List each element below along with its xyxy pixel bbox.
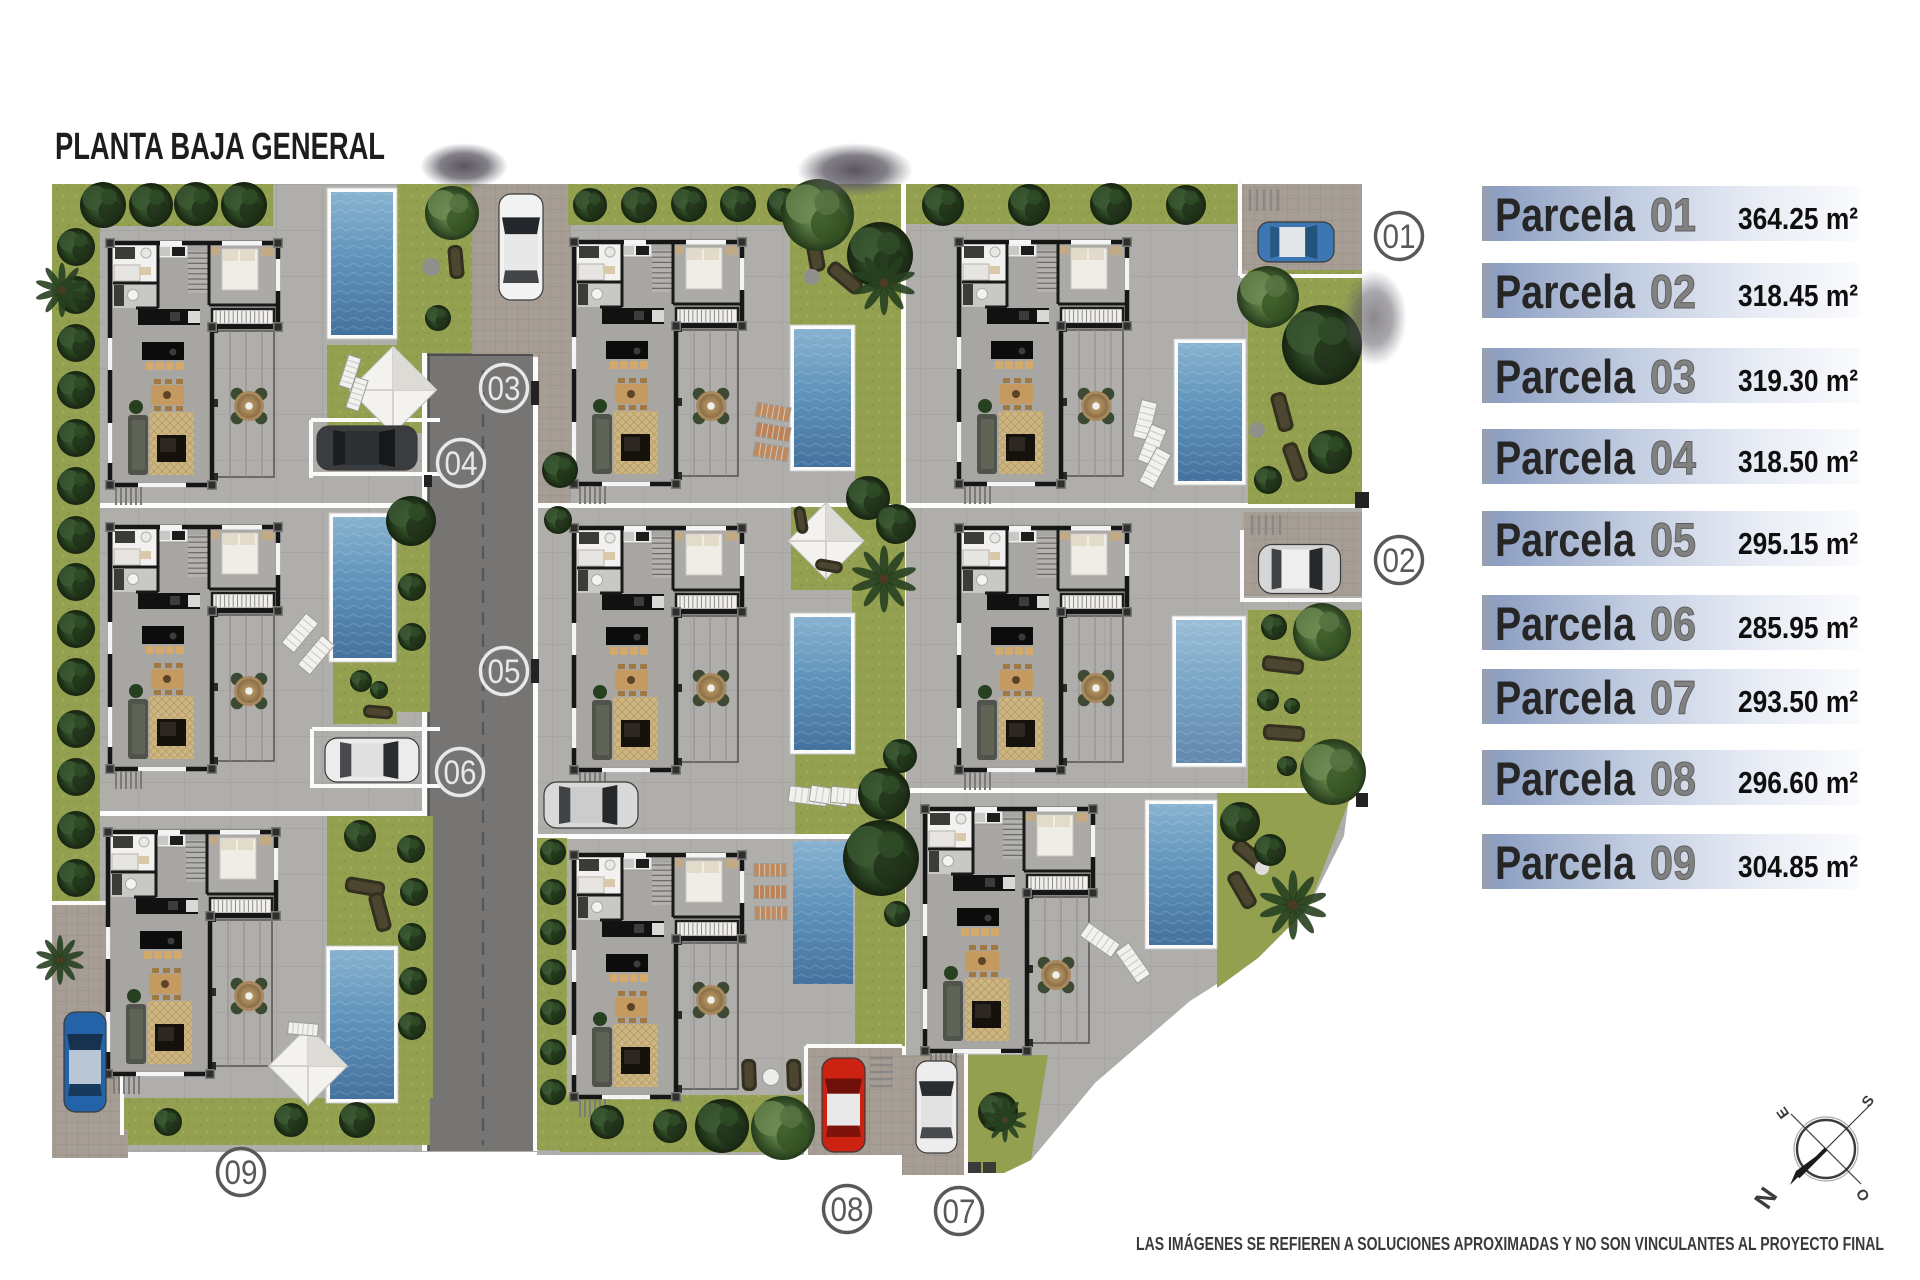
svg-text:Parcela: Parcela bbox=[1495, 671, 1636, 724]
svg-text:06: 06 bbox=[1650, 597, 1696, 650]
svg-text:E: E bbox=[1773, 1104, 1793, 1122]
svg-text:01: 01 bbox=[1383, 218, 1416, 256]
svg-text:304.85 m²: 304.85 m² bbox=[1738, 849, 1858, 884]
svg-text:09: 09 bbox=[225, 1154, 258, 1192]
svg-text:03: 03 bbox=[1650, 350, 1696, 403]
svg-text:04: 04 bbox=[445, 445, 478, 483]
svg-text:07: 07 bbox=[943, 1193, 976, 1231]
svg-text:02: 02 bbox=[1383, 542, 1416, 580]
svg-text:01: 01 bbox=[1650, 188, 1696, 241]
svg-text:295.15 m²: 295.15 m² bbox=[1738, 526, 1858, 561]
svg-text:08: 08 bbox=[1650, 752, 1696, 805]
svg-text:02: 02 bbox=[1650, 265, 1696, 318]
svg-text:03: 03 bbox=[488, 370, 521, 408]
svg-text:O: O bbox=[1853, 1185, 1874, 1205]
svg-text:08: 08 bbox=[831, 1191, 864, 1229]
svg-text:285.95 m²: 285.95 m² bbox=[1738, 610, 1858, 645]
svg-text:Parcela: Parcela bbox=[1495, 265, 1636, 318]
svg-text:N: N bbox=[1748, 1182, 1783, 1215]
svg-text:Parcela: Parcela bbox=[1495, 752, 1636, 805]
svg-text:293.50 m²: 293.50 m² bbox=[1738, 684, 1858, 719]
svg-text:296.60 m²: 296.60 m² bbox=[1738, 765, 1858, 800]
svg-text:06: 06 bbox=[444, 754, 477, 792]
svg-text:Parcela: Parcela bbox=[1495, 836, 1636, 889]
svg-text:07: 07 bbox=[1650, 671, 1696, 724]
svg-text:04: 04 bbox=[1650, 431, 1696, 484]
svg-text:05: 05 bbox=[1650, 513, 1696, 566]
svg-text:Parcela: Parcela bbox=[1495, 431, 1636, 484]
svg-text:05: 05 bbox=[488, 653, 521, 691]
svg-text:PLANTA BAJA GENERAL: PLANTA BAJA GENERAL bbox=[55, 126, 385, 168]
svg-text:319.30 m²: 319.30 m² bbox=[1738, 363, 1858, 398]
svg-text:S: S bbox=[1858, 1092, 1878, 1110]
svg-text:318.45 m²: 318.45 m² bbox=[1738, 278, 1858, 313]
svg-text:Parcela: Parcela bbox=[1495, 350, 1636, 403]
svg-text:Parcela: Parcela bbox=[1495, 188, 1636, 241]
svg-text:LAS IMÁGENES SE REFIEREN A SOL: LAS IMÁGENES SE REFIEREN A SOLUCIONES AP… bbox=[1136, 1233, 1884, 1254]
svg-text:09: 09 bbox=[1650, 836, 1696, 889]
svg-text:Parcela: Parcela bbox=[1495, 513, 1636, 566]
svg-text:318.50 m²: 318.50 m² bbox=[1738, 444, 1858, 479]
svg-text:Parcela: Parcela bbox=[1495, 597, 1636, 650]
svg-text:364.25 m²: 364.25 m² bbox=[1738, 201, 1858, 236]
